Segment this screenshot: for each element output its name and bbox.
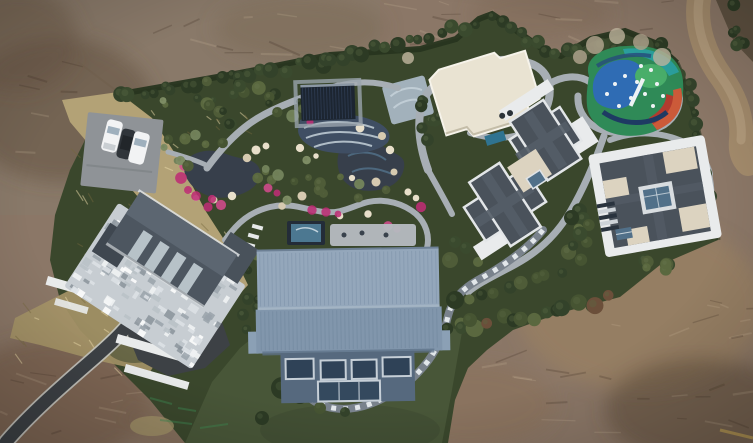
aerial-photo-canvas: Top-down drone view of a landscaped priv… [0, 0, 753, 443]
aerial-photo: Top-down drone view of a landscaped priv… [0, 0, 753, 443]
vignette [0, 0, 753, 443]
